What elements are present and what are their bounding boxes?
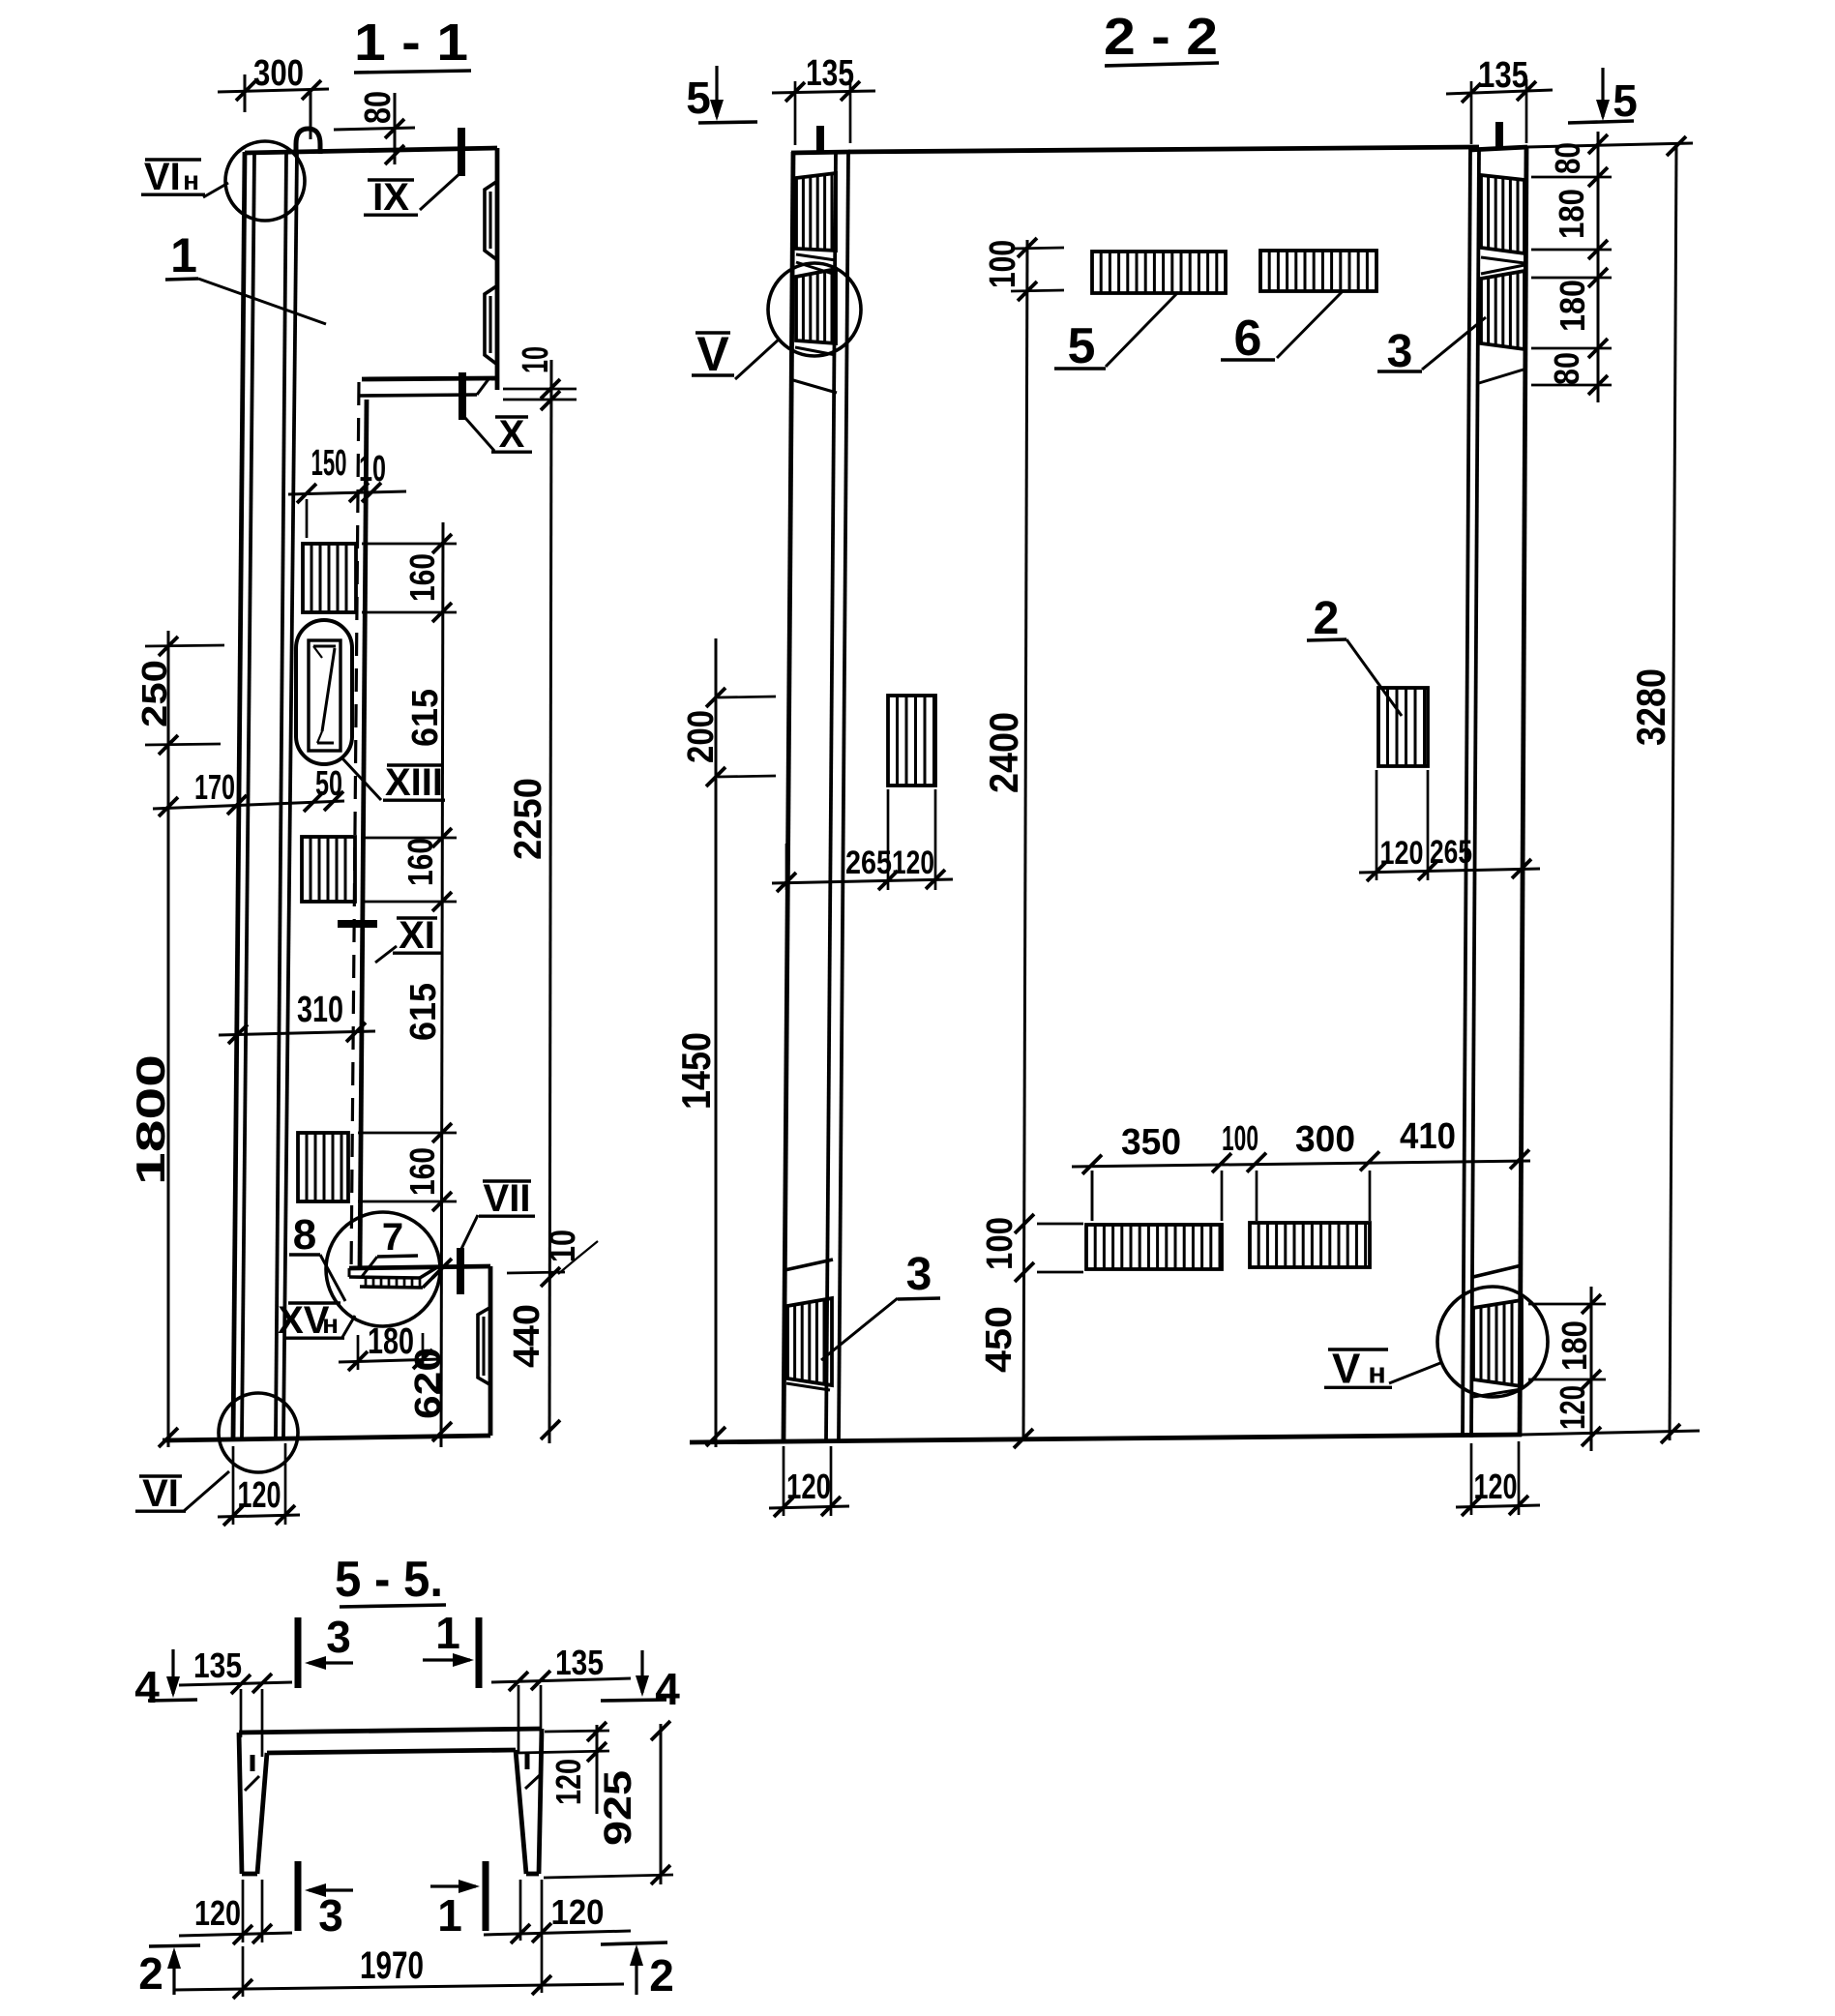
svg-text:5: 5 xyxy=(1613,75,1638,126)
svg-text:135: 135 xyxy=(193,1645,242,1685)
svg-text:VI: VI xyxy=(144,156,181,198)
svg-text:8: 8 xyxy=(293,1211,316,1259)
svg-text:170: 170 xyxy=(194,767,235,807)
svg-text:н: н xyxy=(183,165,199,195)
svg-text:5: 5 xyxy=(1068,318,1096,374)
svg-text:2400: 2400 xyxy=(981,712,1026,793)
svg-text:7: 7 xyxy=(382,1216,403,1259)
svg-text:925: 925 xyxy=(597,1770,639,1846)
svg-text:615: 615 xyxy=(405,689,446,747)
svg-text:80: 80 xyxy=(358,91,399,124)
svg-text:XI: XI xyxy=(399,914,435,957)
svg-text:160: 160 xyxy=(402,553,442,602)
svg-text:120: 120 xyxy=(1380,835,1424,872)
svg-text:5 - 5.: 5 - 5. xyxy=(335,1552,443,1608)
svg-text:VI: VI xyxy=(142,1472,179,1515)
svg-text:120: 120 xyxy=(238,1475,281,1516)
svg-text:120: 120 xyxy=(1474,1467,1518,1506)
svg-text:310: 310 xyxy=(297,990,343,1030)
svg-text:410: 410 xyxy=(1400,1116,1456,1157)
svg-text:1: 1 xyxy=(170,228,197,282)
svg-text:IX: IX xyxy=(372,176,409,219)
svg-text:180: 180 xyxy=(368,1321,414,1362)
svg-text:180: 180 xyxy=(1554,1320,1594,1371)
svg-text:300: 300 xyxy=(1295,1119,1355,1160)
svg-text:120: 120 xyxy=(892,845,934,881)
svg-text:2: 2 xyxy=(1314,593,1340,644)
svg-text:300: 300 xyxy=(253,53,304,94)
svg-text:5: 5 xyxy=(686,73,711,123)
svg-text:50: 50 xyxy=(315,763,342,803)
svg-text:2: 2 xyxy=(649,1950,674,2001)
svg-text:120: 120 xyxy=(786,1467,831,1506)
svg-text:100: 100 xyxy=(983,240,1023,288)
svg-text:2250: 2250 xyxy=(507,778,549,860)
svg-text:265: 265 xyxy=(845,845,892,881)
svg-text:200: 200 xyxy=(681,710,722,763)
svg-text:10: 10 xyxy=(516,346,556,373)
svg-text:XIII: XIII xyxy=(385,761,443,804)
svg-text:10: 10 xyxy=(359,449,386,489)
svg-text:V: V xyxy=(1332,1345,1361,1392)
svg-text:3280: 3280 xyxy=(1628,668,1673,746)
svg-text:135: 135 xyxy=(555,1643,604,1682)
svg-text:135: 135 xyxy=(1478,55,1528,96)
svg-text:160: 160 xyxy=(402,1147,442,1196)
svg-text:150: 150 xyxy=(311,443,347,484)
svg-text:3: 3 xyxy=(326,1612,351,1662)
svg-text:1800: 1800 xyxy=(128,1054,173,1185)
svg-text:80: 80 xyxy=(1547,352,1586,385)
svg-text:2 - 2: 2 - 2 xyxy=(1104,8,1218,66)
svg-text:V: V xyxy=(696,327,729,381)
svg-text:80: 80 xyxy=(1548,142,1587,174)
svg-text:450: 450 xyxy=(979,1306,1020,1373)
svg-text:VII: VII xyxy=(484,1177,531,1220)
svg-text:440: 440 xyxy=(507,1304,548,1368)
svg-text:100: 100 xyxy=(1222,1118,1258,1158)
svg-text:615: 615 xyxy=(403,983,444,1041)
svg-text:350: 350 xyxy=(1121,1122,1181,1163)
svg-text:X: X xyxy=(499,413,525,456)
svg-text:250: 250 xyxy=(134,660,174,727)
svg-text:1970: 1970 xyxy=(360,1944,424,1987)
svg-text:135: 135 xyxy=(806,53,854,94)
svg-text:120: 120 xyxy=(548,1759,588,1805)
svg-text:н: н xyxy=(322,1309,339,1339)
svg-text:4: 4 xyxy=(134,1662,160,1712)
svg-text:1: 1 xyxy=(435,1608,460,1658)
svg-text:120: 120 xyxy=(194,1893,241,1933)
svg-text:4: 4 xyxy=(655,1664,680,1714)
svg-text:120: 120 xyxy=(551,1892,605,1932)
svg-text:180: 180 xyxy=(1552,189,1591,239)
svg-text:265: 265 xyxy=(1430,834,1472,871)
svg-text:3: 3 xyxy=(318,1890,343,1941)
svg-text:1 - 1: 1 - 1 xyxy=(354,14,468,72)
svg-text:2: 2 xyxy=(138,1948,163,1999)
svg-text:3: 3 xyxy=(906,1249,932,1300)
svg-text:160: 160 xyxy=(400,838,440,886)
svg-text:180: 180 xyxy=(1553,280,1592,332)
svg-text:100: 100 xyxy=(980,1217,1021,1270)
svg-text:1: 1 xyxy=(437,1890,462,1941)
svg-text:1450: 1450 xyxy=(673,1032,719,1110)
svg-text:3: 3 xyxy=(1387,326,1413,377)
svg-text:н: н xyxy=(1368,1355,1386,1389)
svg-text:120: 120 xyxy=(1553,1385,1592,1430)
